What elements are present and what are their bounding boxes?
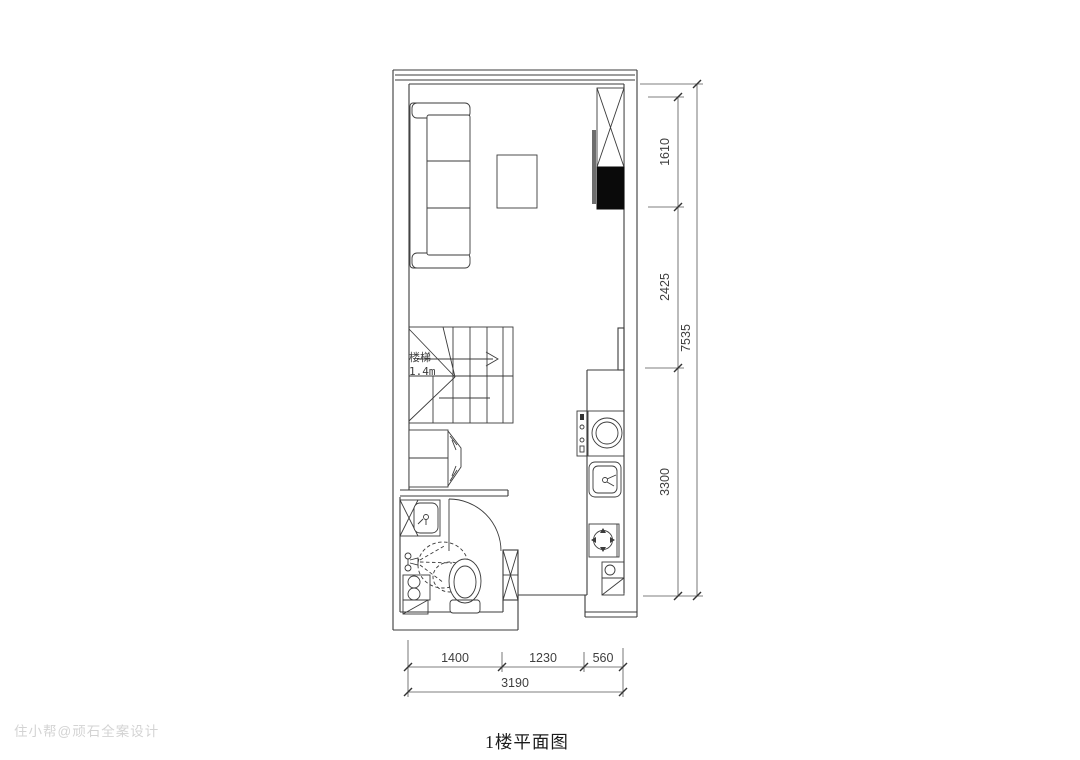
door-post-hatched	[503, 550, 518, 600]
dimension-right: 1610 2425 3300 7535	[640, 80, 703, 600]
sofa	[410, 103, 470, 268]
kitchen-sink	[589, 462, 621, 497]
floor-drain	[602, 562, 624, 578]
stairs-label: 楼梯	[409, 350, 431, 364]
toilet	[449, 559, 481, 613]
dim-560: 560	[593, 651, 614, 665]
fridge	[409, 430, 461, 487]
watermark: 住小帮@顽石全案设计	[14, 723, 159, 739]
tv-panel	[592, 130, 596, 204]
floor-plan-drawing: 楼梯 1.4m	[0, 0, 1080, 760]
bathroom-sink	[400, 500, 440, 536]
dim-3300: 3300	[658, 468, 672, 496]
dim-1610: 1610	[658, 138, 672, 166]
dim-2425: 2425	[658, 273, 672, 301]
dim-7535: 7535	[679, 324, 693, 352]
stairs-size-label: 1.4m	[409, 365, 436, 378]
stove-burner	[589, 524, 619, 557]
bathroom-door	[449, 499, 501, 551]
coffee-table	[497, 155, 537, 208]
bathroom	[400, 499, 501, 614]
counter-partition	[400, 490, 508, 496]
dim-3190: 3190	[501, 676, 529, 690]
tv-black-box	[597, 167, 624, 209]
tv-cabinet	[592, 88, 624, 209]
stairs: 楼梯 1.4m	[409, 327, 513, 423]
washing-machine	[577, 411, 624, 456]
plan-title: 1楼平面图	[485, 732, 569, 752]
dim-1400: 1400	[441, 651, 469, 665]
kitchen	[577, 370, 624, 595]
laundry-fixture	[403, 575, 430, 600]
corner-cabinet	[602, 578, 624, 595]
floor-plan-page: 楼梯 1.4m	[0, 0, 1080, 760]
dim-1230: 1230	[529, 651, 557, 665]
dimension-bottom: 1400 1230 560 3190	[404, 640, 627, 697]
